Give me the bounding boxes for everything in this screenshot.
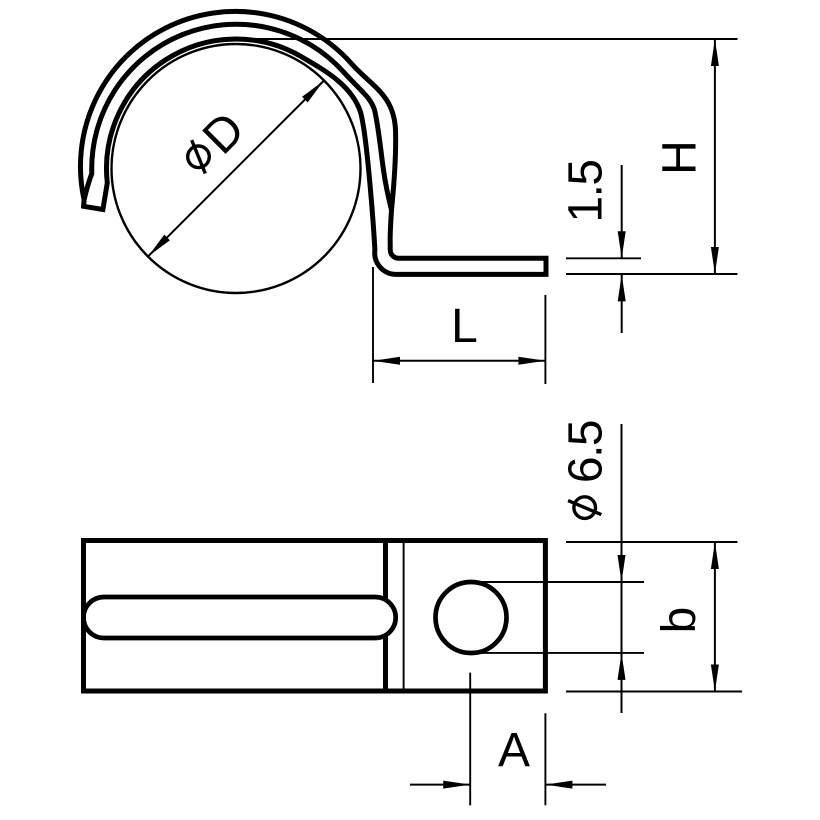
svg-text:A: A xyxy=(498,724,530,777)
svg-text:b: b xyxy=(653,607,706,634)
svg-text:1.5: 1.5 xyxy=(560,160,613,222)
svg-text:6.5: 6.5 xyxy=(560,421,613,483)
svg-text:L: L xyxy=(451,300,478,353)
svg-text:H: H xyxy=(653,140,706,175)
